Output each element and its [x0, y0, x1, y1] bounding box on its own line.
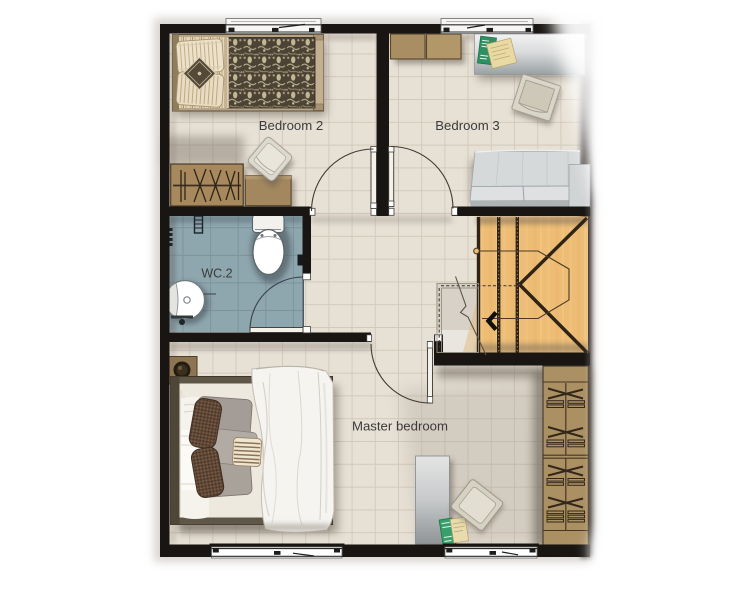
svg-text:Bedroom 2: Bedroom 2: [259, 118, 324, 133]
svg-text:WC.2: WC.2: [201, 267, 232, 281]
svg-text:Bedroom 3: Bedroom 3: [435, 118, 500, 133]
svg-text:Master bedroom: Master bedroom: [352, 419, 448, 434]
